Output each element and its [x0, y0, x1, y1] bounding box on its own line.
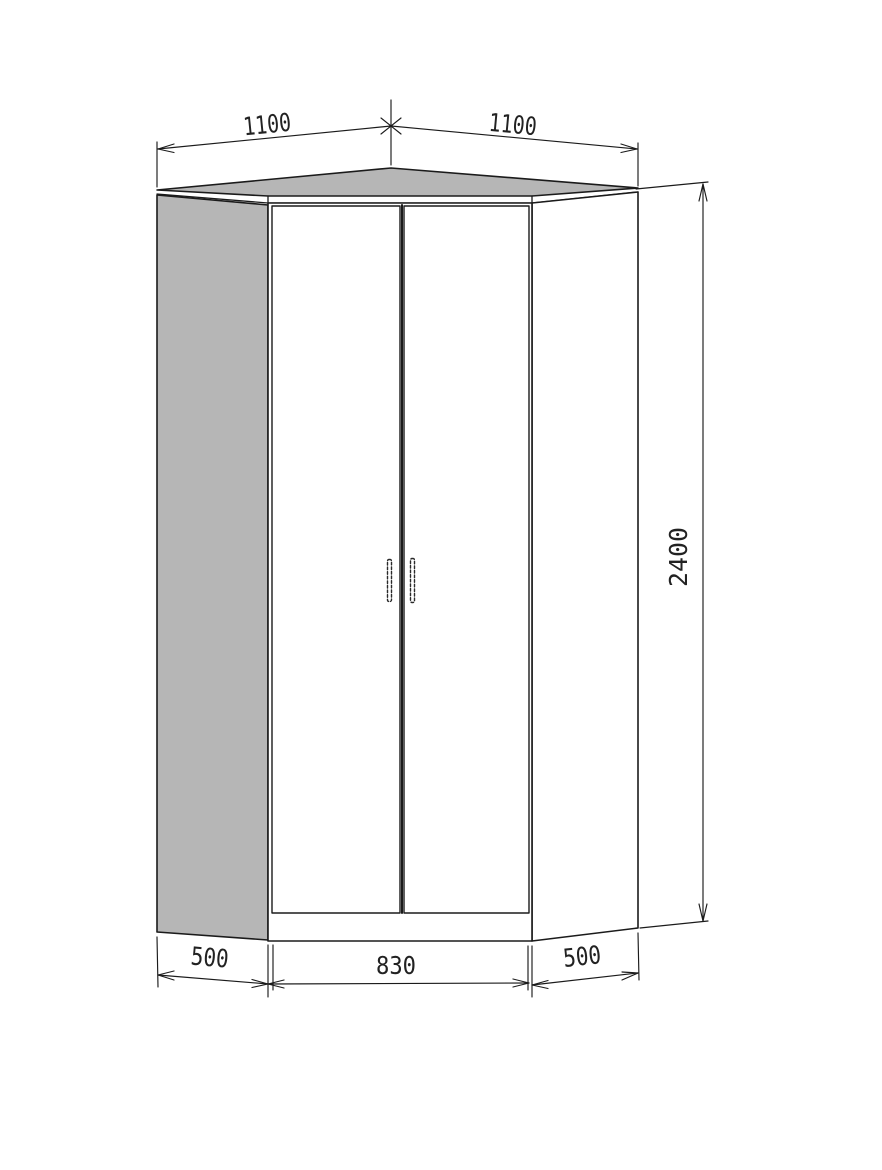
left-door-handle [388, 560, 392, 602]
dim-label-right-depth: 500 [562, 940, 603, 973]
dim-front-width: 830 [268, 946, 532, 997]
wardrobe-body [157, 168, 638, 941]
dim-label-left-depth: 500 [190, 941, 230, 973]
right-side-panel [532, 192, 638, 941]
top-panel [157, 168, 638, 196]
dim-label-top-right: 1100 [488, 108, 538, 141]
dim-right-depth: 500 [532, 933, 639, 989]
left-side-panel [157, 195, 268, 940]
right-door [404, 206, 529, 913]
right-door-handle [411, 559, 415, 603]
technical-drawing-canvas: 1100 1100 2400 [0, 0, 882, 1170]
dim-height: 2400 [636, 182, 708, 928]
left-door [272, 206, 400, 913]
dim-label-front-width: 830 [376, 951, 416, 980]
corner-wardrobe-diagram: 1100 1100 2400 [0, 0, 882, 1170]
dim-label-top-left: 1100 [242, 108, 293, 142]
dim-left-depth: 500 [157, 937, 273, 997]
dim-label-height: 2400 [664, 527, 693, 587]
